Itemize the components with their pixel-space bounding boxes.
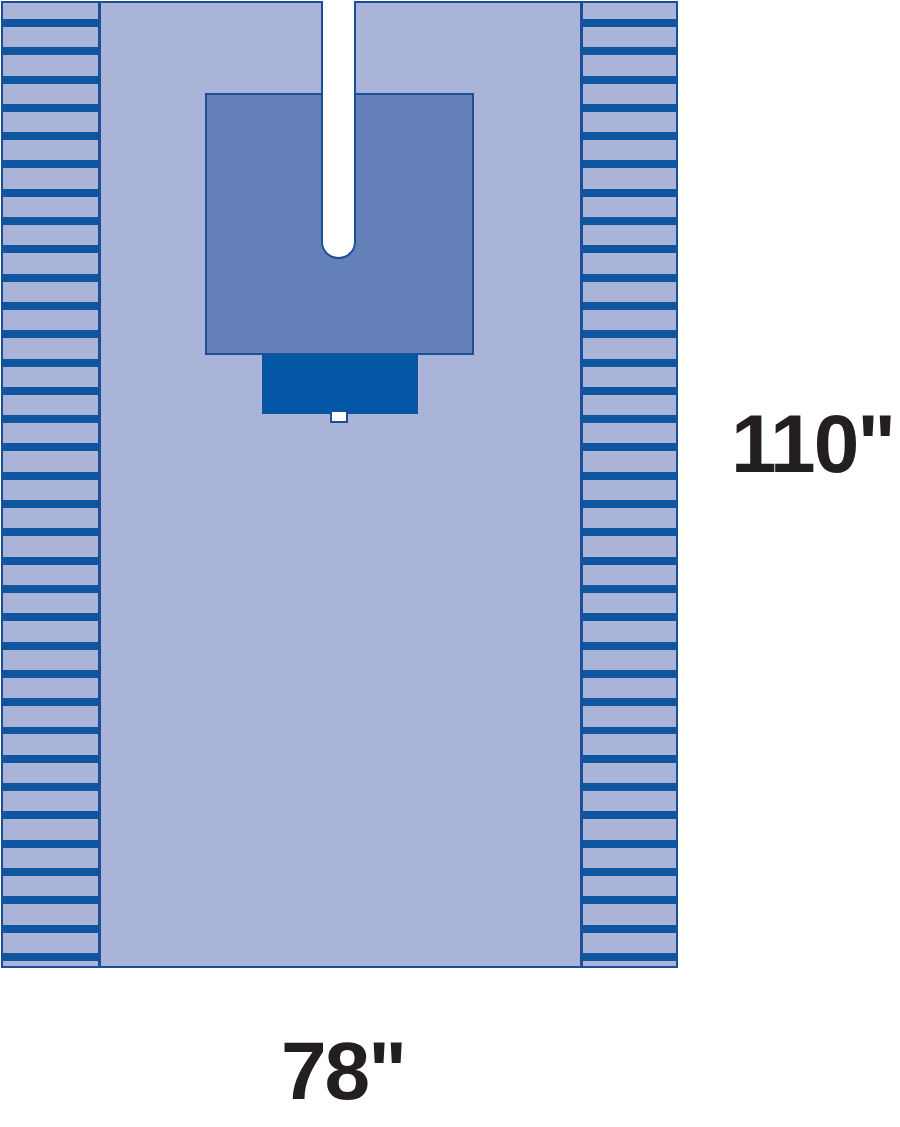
tape-tab [330,410,348,423]
split-opening [321,1,356,259]
left-fanfold-edge [3,3,101,966]
fluid-collection-pouch [262,354,418,414]
right-fanfold-edge [580,3,676,966]
width-dimension-label: 78" [281,1030,405,1112]
diagram-canvas: 110" 78" [0,0,900,1127]
split-drape-body [1,1,678,968]
height-dimension-label: 110" [731,403,894,485]
